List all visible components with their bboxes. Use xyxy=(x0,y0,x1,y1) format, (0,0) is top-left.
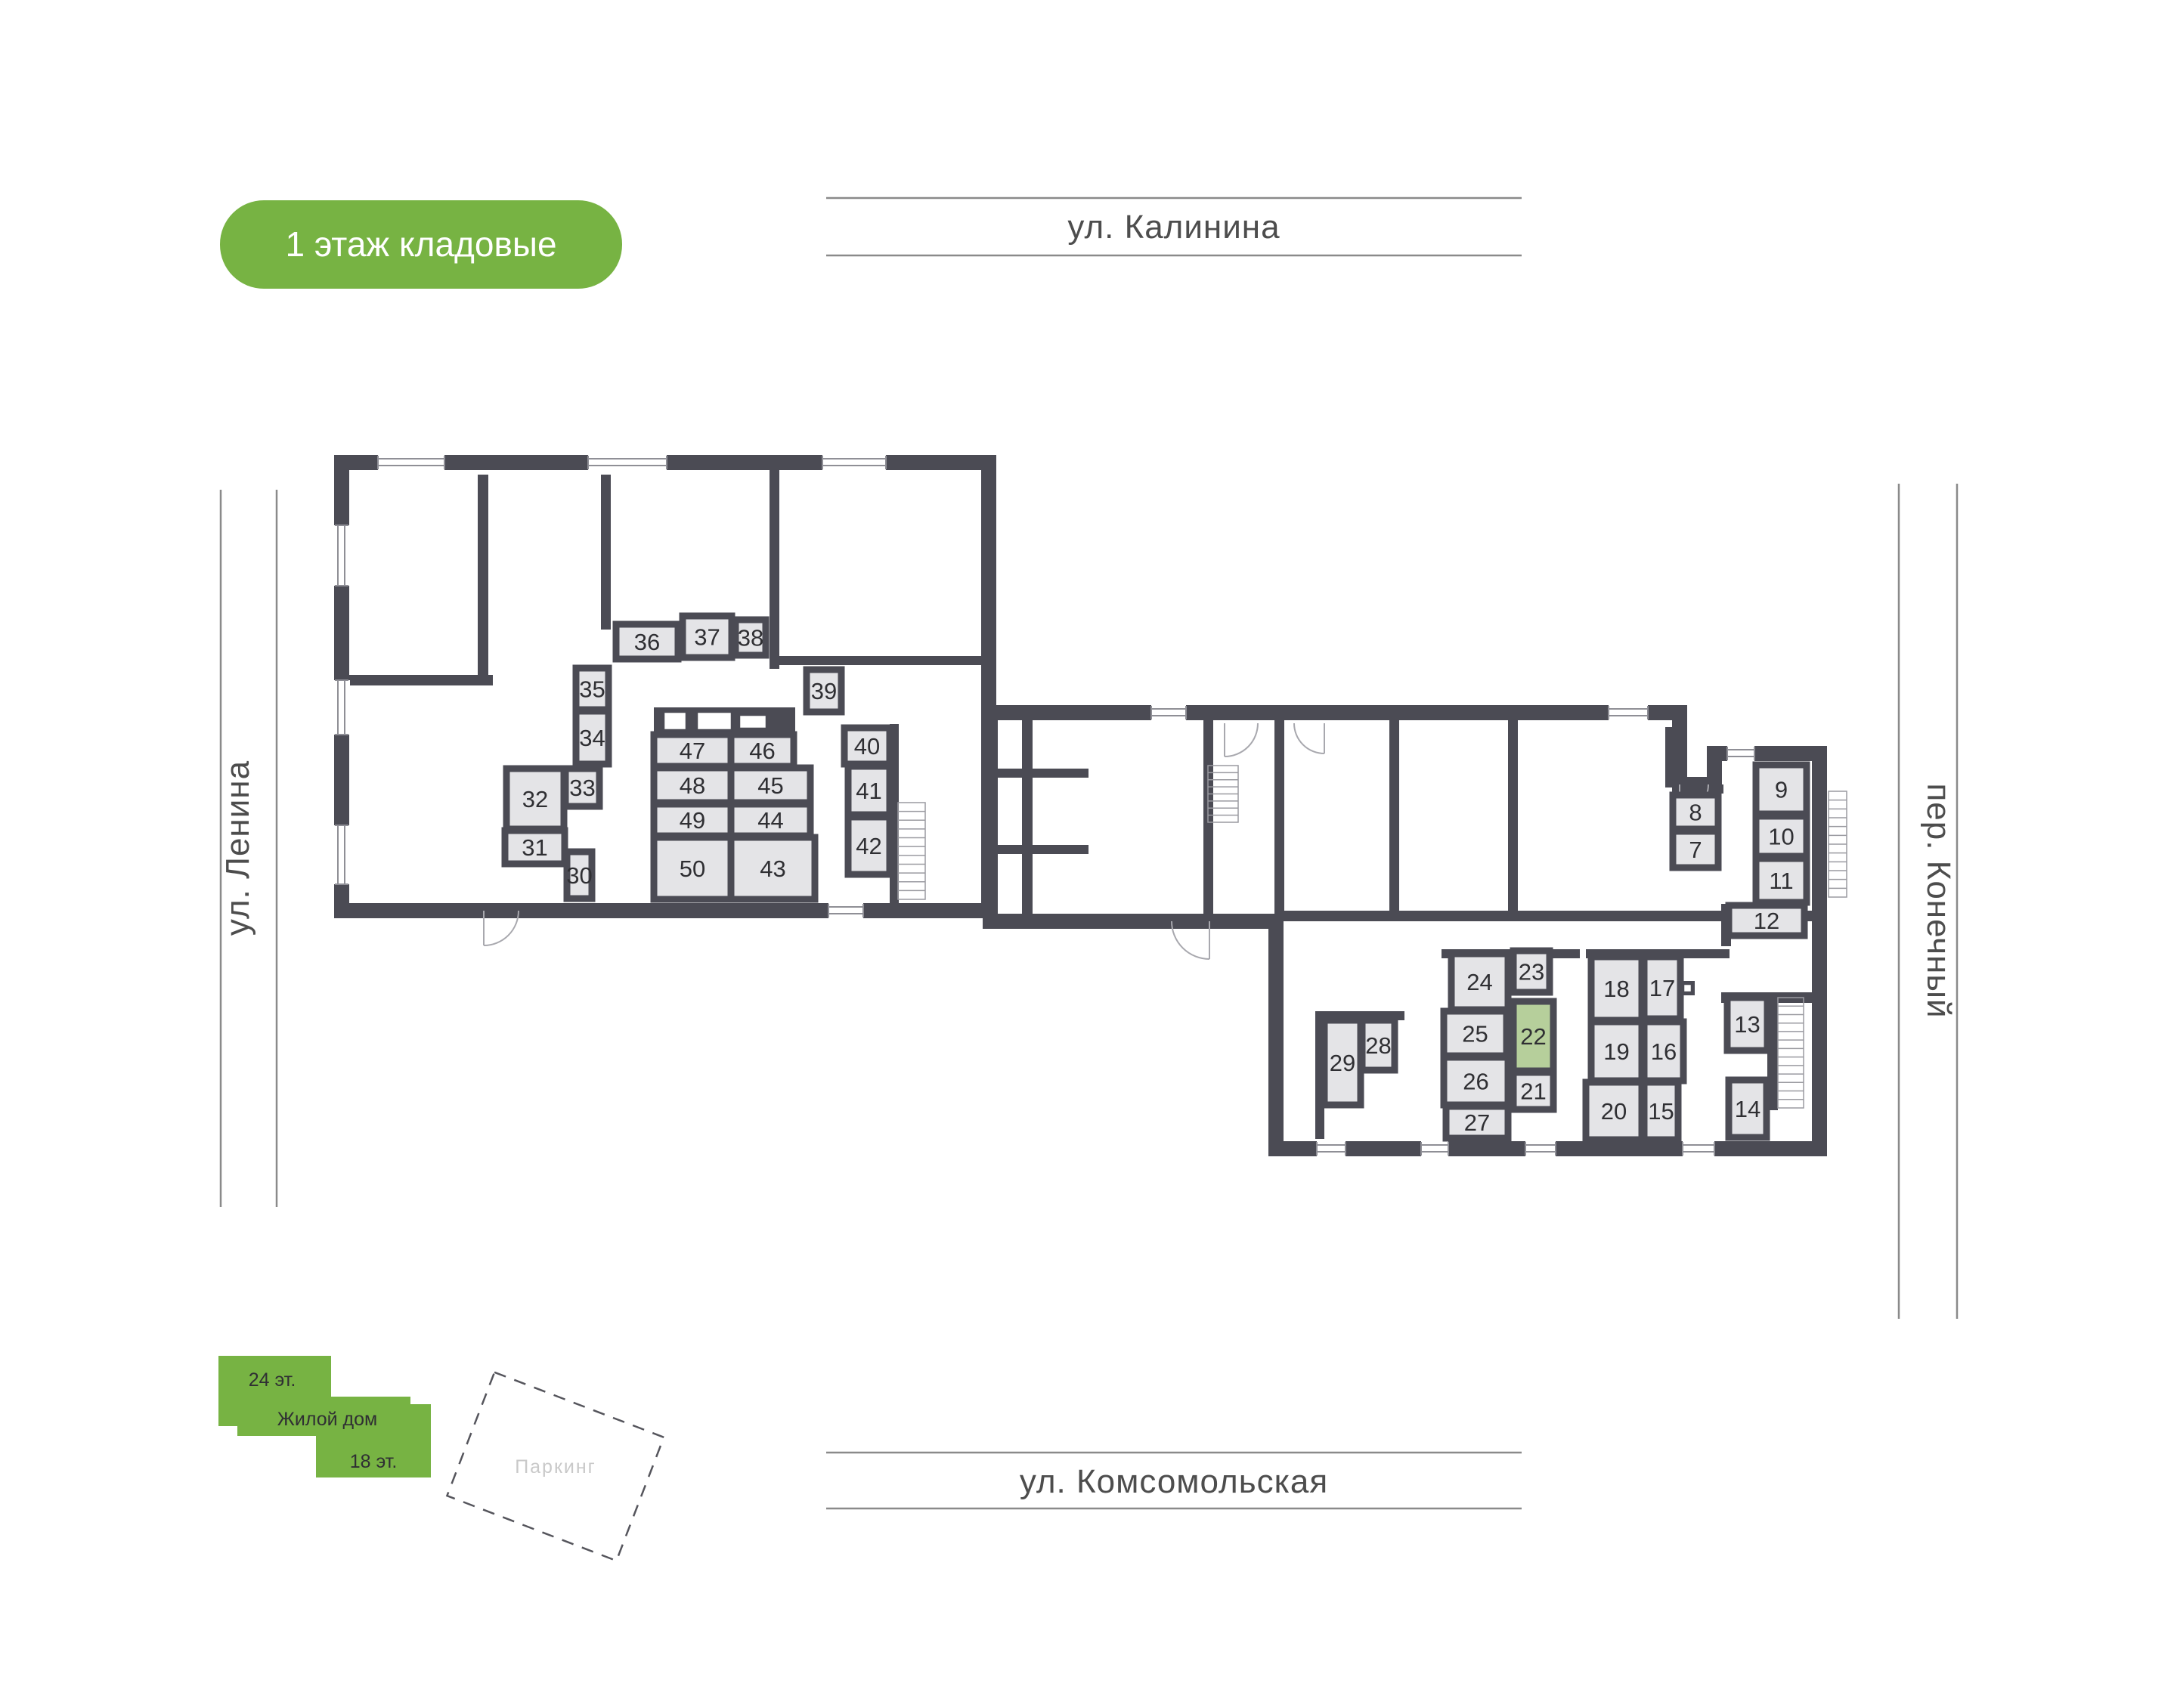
storage-unit-number: 50 xyxy=(680,856,705,882)
storage-unit-number: 12 xyxy=(1754,908,1779,934)
storage-unit-number: 19 xyxy=(1603,1038,1629,1065)
storage-unit-19[interactable]: 19 xyxy=(1591,1022,1642,1081)
window xyxy=(333,525,350,586)
storage-unit-number: 40 xyxy=(854,733,880,760)
storage-unit-49[interactable]: 49 xyxy=(654,804,731,836)
storage-unit-20[interactable]: 20 xyxy=(1586,1082,1642,1140)
storage-unit-number: 45 xyxy=(757,772,783,799)
shaft-opening xyxy=(1683,984,1692,992)
storage-unit-50[interactable]: 50 xyxy=(654,837,731,899)
storage-unit-number: 22 xyxy=(1520,1023,1546,1050)
wall-segment xyxy=(478,475,488,680)
storage-unit-number: 15 xyxy=(1648,1098,1674,1125)
shaft-opening xyxy=(664,712,686,730)
storage-unit-28[interactable]: 28 xyxy=(1362,1020,1395,1070)
storage-unit-46[interactable]: 46 xyxy=(731,735,794,766)
storage-unit-number: 17 xyxy=(1649,975,1675,1001)
storage-unit-41[interactable]: 41 xyxy=(848,766,890,815)
storage-unit-number: 23 xyxy=(1519,959,1544,986)
storage-unit-number: 9 xyxy=(1775,777,1788,803)
storage-unit-number: 48 xyxy=(680,772,705,799)
storage-unit-number: 21 xyxy=(1520,1078,1546,1105)
storage-unit-number: 14 xyxy=(1735,1096,1760,1122)
storage-unit-35[interactable]: 35 xyxy=(576,668,609,710)
storage-unit-11[interactable]: 11 xyxy=(1756,859,1807,902)
wall-segment xyxy=(1274,718,1284,916)
storage-unit-34[interactable]: 34 xyxy=(576,711,609,764)
street-label-lenina: ул. Ленина xyxy=(219,760,256,936)
storage-unit-9[interactable]: 9 xyxy=(1756,765,1807,814)
storage-unit-number: 11 xyxy=(1769,868,1793,894)
storage-unit-26[interactable]: 26 xyxy=(1444,1057,1508,1105)
window xyxy=(1683,1140,1714,1157)
wall-segment xyxy=(1508,719,1518,911)
storage-unit-45[interactable]: 45 xyxy=(731,768,810,803)
storage-unit-39[interactable]: 39 xyxy=(807,670,841,712)
storage-unit-number: 38 xyxy=(738,625,763,651)
storage-unit-21[interactable]: 21 xyxy=(1513,1072,1553,1109)
storage-unit-number: 36 xyxy=(634,629,660,655)
wall-segment xyxy=(779,656,989,665)
storage-unit-number: 46 xyxy=(749,738,775,764)
window xyxy=(822,454,886,471)
storage-unit-number: 13 xyxy=(1734,1011,1760,1038)
storage-unit-24[interactable]: 24 xyxy=(1451,954,1508,1010)
window xyxy=(333,680,350,735)
storage-unit-48[interactable]: 48 xyxy=(654,768,731,803)
storage-unit-number: 29 xyxy=(1330,1050,1355,1076)
storage-unit-number: 35 xyxy=(579,676,605,703)
storage-unit-31[interactable]: 31 xyxy=(505,831,565,864)
storage-unit-47[interactable]: 47 xyxy=(654,735,731,766)
storage-unit-number: 10 xyxy=(1768,824,1794,850)
storage-unit-number: 31 xyxy=(522,834,547,861)
storage-unit-number: 20 xyxy=(1601,1098,1627,1125)
shaft-opening xyxy=(739,715,766,729)
storage-unit-number: 33 xyxy=(569,775,595,801)
storage-unit-15[interactable]: 15 xyxy=(1644,1082,1678,1140)
minimap-label-parking: Паркинг xyxy=(515,1456,596,1477)
storage-unit-number: 49 xyxy=(680,807,705,834)
storage-unit-13[interactable]: 13 xyxy=(1727,998,1767,1050)
minimap-label-house: Жилой дом xyxy=(277,1409,377,1430)
street-label-konechny: пер. Конечный xyxy=(1920,783,1957,1018)
wall-segment xyxy=(770,469,779,669)
storage-unit-36[interactable]: 36 xyxy=(616,624,678,659)
storage-unit-number: 43 xyxy=(760,856,785,882)
storage-unit-40[interactable]: 40 xyxy=(844,728,890,764)
storage-unit-number: 26 xyxy=(1463,1069,1488,1095)
wall-segment xyxy=(342,675,493,685)
storage-unit-number: 37 xyxy=(694,624,720,651)
window xyxy=(378,454,444,471)
storage-unit-30[interactable]: 30 xyxy=(566,852,592,899)
window xyxy=(333,825,350,884)
floorplan-canvas: ул. Калинина ул. Комсомольская ул. Ленин… xyxy=(0,0,2177,1708)
wall-segment xyxy=(1022,718,1033,916)
wall-segment xyxy=(990,845,1088,854)
storage-unit-number: 16 xyxy=(1651,1038,1677,1065)
street-label-komsomolskaya: ул. Комсомольская xyxy=(1020,1463,1328,1500)
minimap-label-18fl: 18 эт. xyxy=(350,1451,398,1472)
floor-badge-label: 1 этаж кладовые xyxy=(285,224,556,264)
storage-unit-16[interactable]: 16 xyxy=(1644,1022,1683,1081)
window xyxy=(1727,745,1754,762)
storage-unit-25[interactable]: 25 xyxy=(1444,1011,1507,1056)
storage-unit-number: 30 xyxy=(566,862,592,889)
storage-unit-37[interactable]: 37 xyxy=(683,616,732,658)
storage-unit-18[interactable]: 18 xyxy=(1591,957,1642,1020)
storage-unit-29[interactable]: 29 xyxy=(1324,1020,1361,1105)
storage-unit-number: 41 xyxy=(856,778,881,804)
window xyxy=(1317,1140,1346,1157)
storage-unit-43[interactable]: 43 xyxy=(731,837,815,899)
storage-unit-17[interactable]: 17 xyxy=(1644,957,1680,1019)
storage-unit-number: 27 xyxy=(1464,1109,1490,1136)
storage-unit-32[interactable]: 32 xyxy=(506,769,564,829)
storage-unit-number: 18 xyxy=(1603,976,1629,1002)
street-label-kalinina: ул. Калинина xyxy=(1067,209,1280,246)
wall-segment xyxy=(990,769,1088,778)
storage-unit-number: 39 xyxy=(811,678,837,704)
storage-unit-27[interactable]: 27 xyxy=(1446,1106,1508,1138)
storage-unit-number: 8 xyxy=(1689,800,1702,826)
storage-unit-number: 32 xyxy=(522,786,548,812)
storage-unit-44[interactable]: 44 xyxy=(731,804,810,836)
window xyxy=(1151,704,1186,721)
storage-unit-number: 47 xyxy=(680,738,705,764)
storage-unit-12[interactable]: 12 xyxy=(1729,905,1804,936)
storage-unit-number: 44 xyxy=(757,807,783,834)
storage-unit-42[interactable]: 42 xyxy=(848,817,890,874)
wall-segment xyxy=(1389,719,1399,911)
storage-unit-number: 24 xyxy=(1466,969,1492,995)
storage-unit-number: 34 xyxy=(579,725,605,751)
window xyxy=(1421,1140,1448,1157)
storage-unit-number: 42 xyxy=(856,833,881,859)
window xyxy=(828,902,863,919)
storage-unit-7[interactable]: 7 xyxy=(1673,831,1718,868)
window xyxy=(1609,704,1648,721)
shaft-opening xyxy=(697,712,732,730)
floorplan-page: ул. Калинина ул. Комсомольская ул. Ленин… xyxy=(0,0,2177,1708)
storage-unit-number: 28 xyxy=(1365,1032,1391,1059)
storage-unit-23[interactable]: 23 xyxy=(1513,951,1550,992)
storage-unit-14[interactable]: 14 xyxy=(1729,1080,1767,1137)
wall-segment xyxy=(601,475,611,630)
storage-unit-10[interactable]: 10 xyxy=(1756,816,1807,856)
storage-unit-8[interactable]: 8 xyxy=(1673,795,1718,829)
minimap-label-24fl: 24 эт. xyxy=(249,1369,296,1391)
stairs-hatch xyxy=(1829,791,1847,897)
storage-unit-38[interactable]: 38 xyxy=(735,620,766,655)
storage-unit-33[interactable]: 33 xyxy=(565,769,599,806)
wall-segment xyxy=(1665,727,1680,787)
wing-outline xyxy=(990,713,1819,1149)
storage-unit-number: 25 xyxy=(1462,1021,1488,1047)
window xyxy=(588,454,667,471)
floor-badge: 1 этаж кладовые xyxy=(220,200,622,289)
window xyxy=(1525,1140,1556,1157)
storage-unit-22[interactable]: 22 xyxy=(1513,1001,1553,1071)
storage-unit-number: 7 xyxy=(1689,837,1702,863)
